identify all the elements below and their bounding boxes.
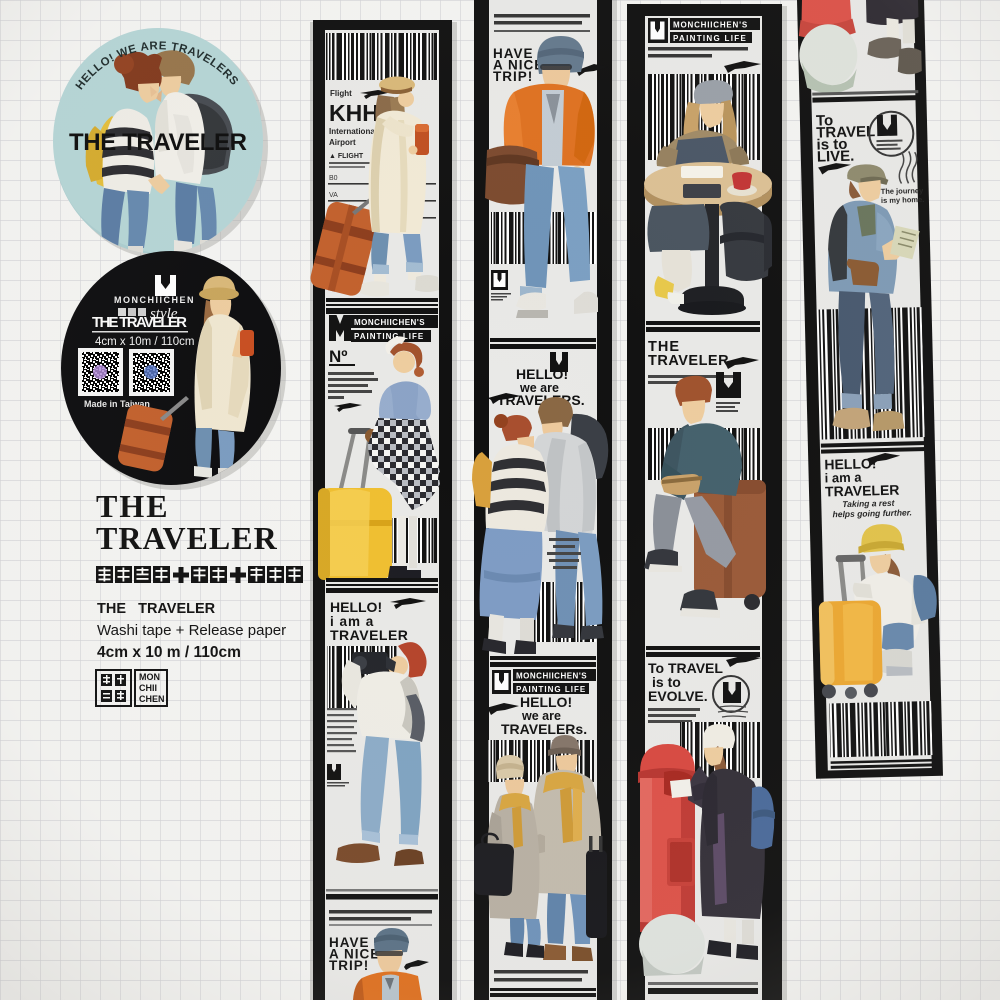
svg-text:4cm x 10 m / 110cm: 4cm x 10 m / 110cm	[97, 644, 241, 661]
svg-text:TRAVELER.: TRAVELER.	[648, 353, 734, 369]
svg-text:Washi tape + Release paper: Washi tape + Release paper	[97, 622, 286, 639]
svg-text:THE TRAVELER: THE TRAVELER	[97, 601, 216, 617]
svg-text:CHEN: CHEN	[139, 694, 165, 704]
svg-text:THE TRAVELER: THE TRAVELER	[92, 314, 187, 331]
svg-text:MONCHIICHEN'S: MONCHIICHEN'S	[516, 672, 587, 681]
svg-text:Nº: Nº	[329, 347, 348, 366]
svg-text:MONCHIICHEN: MONCHIICHEN	[114, 295, 195, 305]
svg-text:MONCHIICHEN'S: MONCHIICHEN'S	[673, 21, 748, 30]
svg-text:4cm x 10m / 110cm: 4cm x 10m / 110cm	[95, 336, 195, 348]
svg-text:HELLO!: HELLO!	[520, 694, 572, 710]
svg-text:EVOLVE.: EVOLVE.	[648, 688, 708, 704]
svg-text:LIVE.: LIVE.	[817, 148, 855, 166]
svg-text:PAINTING LIFE: PAINTING LIFE	[354, 332, 424, 341]
svg-text:HELLO!: HELLO!	[516, 366, 568, 382]
svg-text:MONCHIICHEN'S: MONCHIICHEN'S	[354, 318, 425, 327]
svg-text:▲ FLIGHT: ▲ FLIGHT	[329, 153, 364, 160]
svg-text:MON: MON	[139, 672, 160, 682]
svg-text:TRAVELER: TRAVELER	[330, 627, 408, 643]
svg-text:TRAVELER: TRAVELER	[96, 520, 278, 556]
svg-text:TRIP!: TRIP!	[329, 958, 369, 973]
svg-text:THE TRAVELER: THE TRAVELER	[69, 129, 247, 156]
svg-text:HELLO!: HELLO!	[330, 599, 382, 615]
svg-text:Airport: Airport	[329, 138, 356, 147]
svg-text:VA: VA	[329, 192, 338, 199]
svg-text:CHII: CHII	[139, 683, 157, 693]
svg-text:PAINTING LIFE: PAINTING LIFE	[516, 685, 586, 694]
svg-text:TRAVELER: TRAVELER	[825, 482, 900, 500]
svg-text:TRAVELERs.: TRAVELERs.	[501, 721, 587, 737]
svg-text:is my home.: is my home.	[881, 195, 925, 205]
svg-text:International: International	[329, 127, 377, 136]
svg-text:helps going further.: helps going further.	[832, 507, 912, 519]
svg-text:Flight: Flight	[330, 89, 352, 98]
svg-text:B0: B0	[329, 175, 338, 182]
svg-text:TRIP!: TRIP!	[493, 69, 533, 84]
svg-text:THE: THE	[96, 488, 170, 524]
svg-text:KHH: KHH	[329, 100, 379, 126]
svg-text:PAINTING LIFE: PAINTING LIFE	[673, 34, 747, 43]
